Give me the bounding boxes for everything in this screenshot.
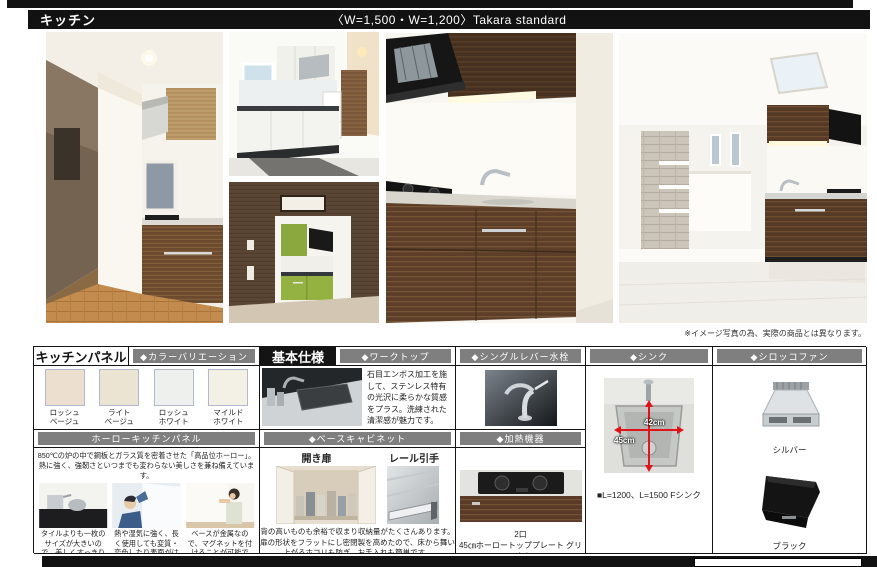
faucet-header-cell: ◆シングルレバー水栓	[456, 347, 586, 366]
swatch-light-beige: ライトベージュ	[95, 369, 143, 427]
page-title: キッチン	[28, 10, 96, 29]
sink-figure: 42cm 45cm	[604, 378, 694, 473]
color-variation-header: ◆カラーバリエーション	[133, 349, 255, 363]
fan-black-label: ブラック	[772, 540, 806, 552]
silver-hood-image	[751, 382, 829, 440]
worktop-cell: 石目エンボス加工を施して、ステンレス特有の光沢に柔らかな質感をプラス。洗練された…	[260, 366, 456, 430]
photo-white-kitchen	[229, 32, 379, 176]
photo-dark-kitchen-closeup	[386, 33, 613, 323]
disclaimer-note: ※イメージ写真の為、実際の商品とは異なります。	[684, 328, 866, 339]
stove-caption: 2口 45㎝ホーロートッププレート グリルなし	[456, 530, 585, 554]
worktop-image	[262, 368, 362, 426]
base-cabinet-header: ◆ベースキャビネット	[264, 432, 451, 445]
holo-panel-header: ホーローキッチンパネル	[38, 432, 255, 445]
base-cabinet-header-cell: ◆ベースキャビネット	[260, 430, 456, 448]
faucet-image	[485, 370, 557, 426]
stove-image	[460, 456, 582, 522]
black-hood-image	[750, 476, 830, 538]
rail-handle-label: レール引手	[373, 450, 455, 465]
swatch-chip	[45, 369, 85, 406]
swatch-roche-white: ロッシュホワイト	[150, 369, 198, 427]
base-cabinet-content-cell: 開き扉 レール引手	[260, 448, 456, 554]
feature-stove-image	[38, 483, 108, 528]
heater-header-cell: ◆加熱機器	[456, 430, 586, 448]
sink-width-dimension: 42cm	[644, 418, 664, 427]
holo-feature-magnet: ベースが金属なので、マグネットを付けることが可能です。	[185, 483, 255, 554]
sink-caption: ■L=1200、L=1500 Fシンク	[597, 489, 701, 501]
fan-header: ◆シロッコファン	[717, 349, 862, 363]
heater-header: ◆加熱機器	[460, 432, 581, 445]
kitchen-panel-title: キッチンパネル	[34, 347, 129, 365]
feature-wipe-image	[111, 483, 181, 528]
faucet-header: ◆シングルレバー水栓	[460, 349, 581, 363]
rail-handle-image	[387, 466, 439, 524]
holo-content-cell: 850℃の炉の中で鋼板とガラス質を密着させた「高品位ホーロー」。熱に強く、強靭さ…	[34, 448, 260, 554]
sink-depth-dimension: 45cm	[614, 436, 634, 445]
swatch-chip	[208, 369, 248, 406]
kitchen-spec-sheet: キッチン 〈W=1,500・W=1,200〉Takara standard	[0, 0, 877, 567]
base-cabinet-text: 背の高いものも余裕で収まり収納量がたくさんあります。扉の形状をフラットにし密閉製…	[260, 527, 455, 554]
photo-room-with-kitchen	[619, 33, 867, 323]
kitchen-panel-header-cell: キッチンパネル ◆カラーバリエーション	[34, 347, 260, 366]
fan-silver-label: シルバー	[772, 444, 806, 456]
hinged-door-label: 開き扉	[260, 450, 373, 465]
hinged-door-image	[276, 466, 376, 524]
color-swatches-cell: ロッシュベージュ ライトベージュ ロッシュホワイト マイルドホワイト	[34, 366, 260, 430]
sink-cell: 42cm 45cm ■L=1200、L=1500 Fシンク	[586, 366, 713, 554]
swatch-roche-beige: ロッシュベージュ	[41, 369, 89, 427]
header-bar: キッチン 〈W=1,500・W=1,200〉Takara standard	[28, 10, 870, 29]
fan-header-cell: ◆シロッコファン	[713, 347, 867, 366]
bottom-bar	[42, 556, 877, 567]
worktop-text: 石目エンボス加工を施して、ステンレス特有の光沢に柔らかな質感をプラス。洗練された…	[367, 369, 451, 427]
basic-spec-header-cell: 基本仕様 ◆ワークトップ	[260, 347, 456, 366]
worktop-header: ◆ワークトップ	[340, 349, 451, 363]
holo-feature-size: タイルよりも一枚のサイズが大きいので、美しくすっきりとした印象に。	[38, 483, 108, 554]
top-rule	[7, 0, 853, 8]
sink-header: ◆シンク	[590, 349, 708, 363]
swatch-mild-white: マイルドホワイト	[204, 369, 252, 427]
basic-spec-title: 基本仕様	[260, 347, 336, 365]
fan-cell: シルバー ブラック	[713, 366, 867, 554]
spec-table: キッチンパネル ◆カラーバリエーション 基本仕様 ◆ワークトップ ◆シングルレバ…	[33, 346, 866, 553]
holo-feature-durable: 熱や湿気に強く、長く使用しても変質・変色したり表面がはがれたりしません。	[111, 483, 181, 554]
heater-content-cell: 2口 45㎝ホーロートッププレート グリルなし	[456, 448, 586, 554]
photo-green-kitchen	[229, 182, 379, 323]
bottom-logo-box	[694, 558, 862, 567]
feature-magnet-image	[185, 483, 255, 528]
faucet-cell	[456, 366, 586, 430]
photo-kitchen-corridor	[46, 32, 223, 323]
holo-header-cell: ホーローキッチンパネル	[34, 430, 260, 448]
swatch-chip	[154, 369, 194, 406]
sink-header-cell: ◆シンク	[586, 347, 713, 366]
swatch-chip	[99, 369, 139, 406]
holo-intro-text: 850℃の炉の中で鋼板とガラス質を密着させた「高品位ホーロー」。熱に強く、強靭さ…	[37, 451, 256, 481]
header-subtitle: 〈W=1,500・W=1,200〉Takara standard	[332, 11, 567, 28]
